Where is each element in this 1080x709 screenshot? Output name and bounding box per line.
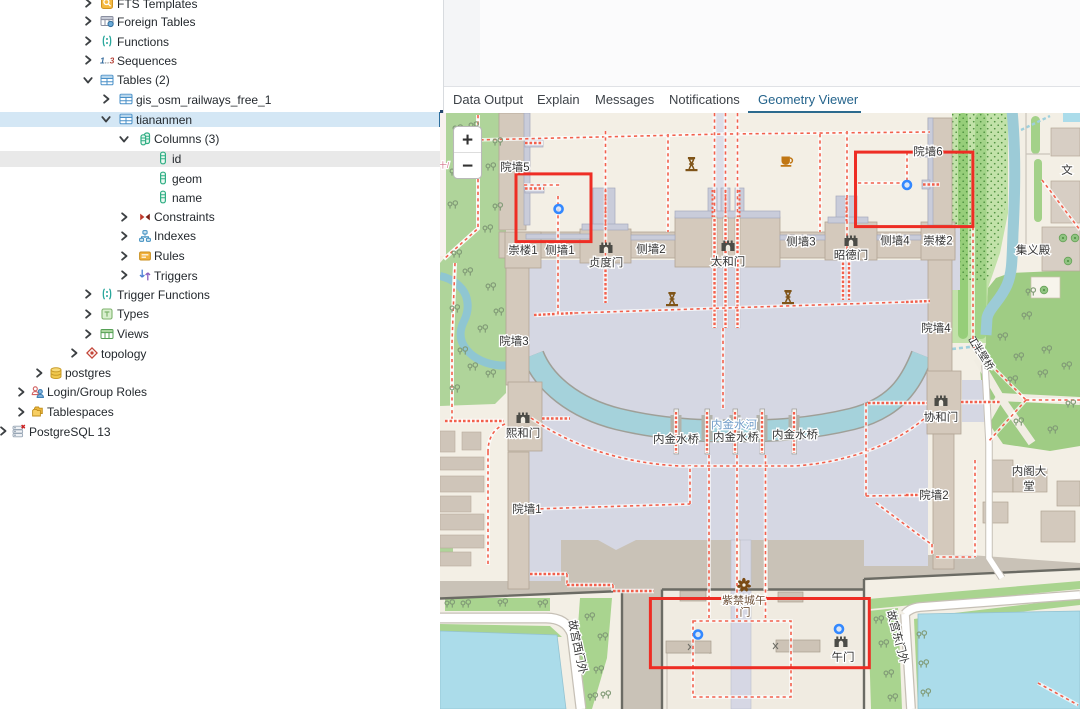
svg-text:门: 门 — [740, 604, 751, 620]
svg-text:崇楼1: 崇楼1 — [508, 242, 537, 258]
svg-text:内金水河: 内金水河 — [711, 417, 757, 433]
svg-text:昭德门: 昭德门 — [834, 247, 869, 263]
svg-text:院墙3: 院墙3 — [499, 333, 528, 349]
svg-text:侧墙1: 侧墙1 — [545, 242, 574, 258]
svg-text:堂: 堂 — [1023, 478, 1035, 494]
svg-text:−: − — [462, 156, 473, 177]
svg-text:太和门: 太和门 — [711, 254, 746, 270]
svg-text:院墙5: 院墙5 — [500, 159, 529, 175]
svg-text:崇楼2: 崇楼2 — [923, 233, 952, 249]
svg-text:侧墙2: 侧墙2 — [636, 241, 665, 257]
svg-text:十/: 十/ — [440, 160, 450, 171]
svg-text:内金水桥: 内金水桥 — [653, 431, 699, 447]
svg-text:午门: 午门 — [832, 649, 855, 665]
svg-text:院墙2: 院墙2 — [919, 487, 948, 503]
svg-text:1..3: 1..3 — [100, 56, 114, 66]
svg-text:集义殿: 集义殿 — [1016, 242, 1051, 258]
svg-text:协和门: 协和门 — [924, 409, 959, 425]
svg-text:侧墙3: 侧墙3 — [786, 234, 815, 250]
svg-text:院墙1: 院墙1 — [512, 501, 541, 517]
svg-text:+: + — [462, 130, 473, 151]
svg-text:院墙6: 院墙6 — [913, 144, 942, 160]
svg-text:内金水桥: 内金水桥 — [772, 427, 818, 443]
svg-text:贞度门: 贞度门 — [589, 255, 624, 271]
svg-text:文: 文 — [1061, 162, 1073, 178]
svg-text:侧墙4: 侧墙4 — [880, 233, 910, 249]
svg-text:院墙4: 院墙4 — [921, 320, 951, 336]
svg-text:熙和门: 熙和门 — [506, 425, 541, 441]
svg-text:内阁大: 内阁大 — [1012, 463, 1047, 479]
